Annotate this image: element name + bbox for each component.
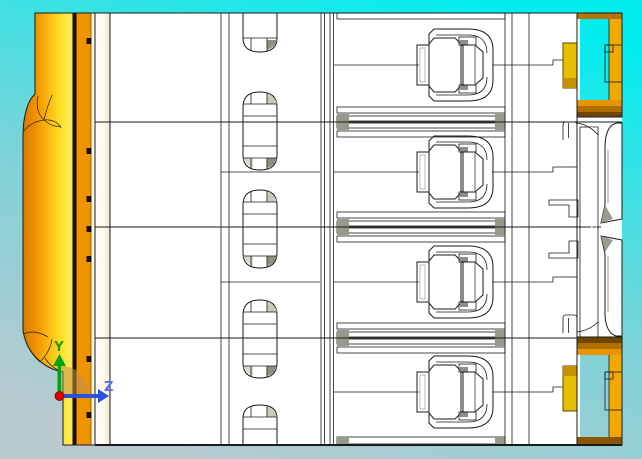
origin-point[interactable]: [55, 392, 64, 401]
axis-y-label: Y: [53, 340, 64, 355]
cad-viewport: Y Z: [0, 0, 642, 459]
breaker-housing[interactable]: [95, 13, 622, 445]
axis-z-label: Z: [104, 380, 113, 395]
cad-drawing: Y Z: [0, 0, 642, 459]
